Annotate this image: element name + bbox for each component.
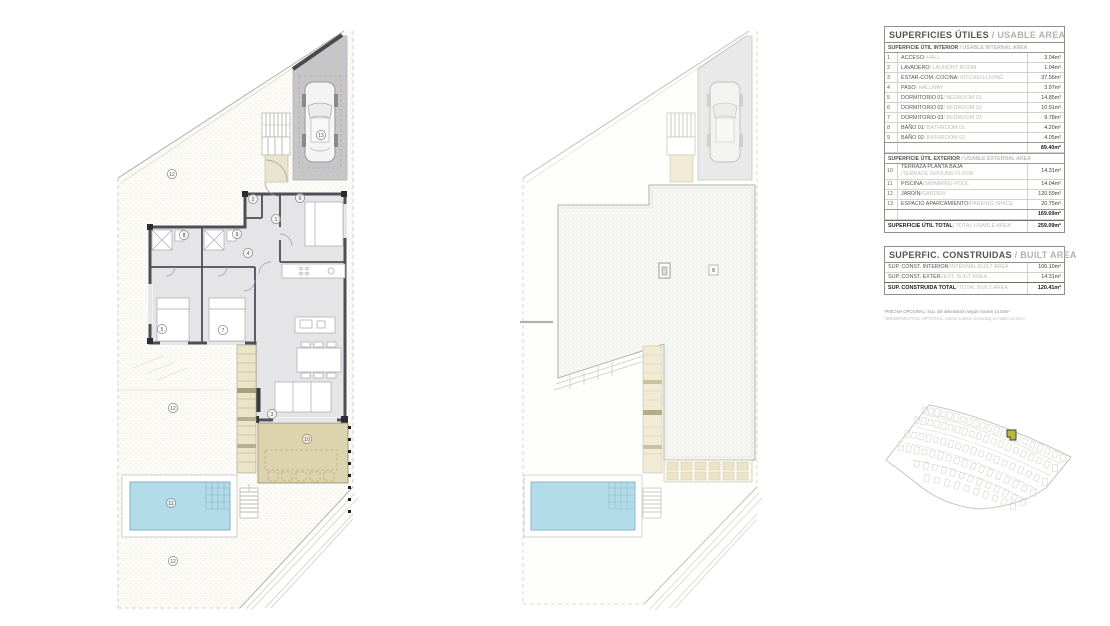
table-row: 9BAÑO 02 / BATHROOM 024.05m²	[885, 133, 1064, 142]
svg-text:10: 10	[304, 437, 310, 443]
table-row: 3ESTAR-COM.-COCINA / KITCHEN-LIVING37.56…	[885, 73, 1064, 83]
table-row: 5DORMITORIO 01 / BEDROOM 0114.85m²	[885, 93, 1064, 103]
urbanization-minimap	[875, 398, 1085, 543]
built-total-label-es: SUP. CONSTRUIDA TOTAL	[888, 285, 956, 291]
exterior-total-row: 169.69m²	[885, 209, 1064, 220]
table-row: 8BAÑO 01 / BATHROOM 014.20m²	[885, 123, 1064, 133]
svg-text:5: 5	[161, 327, 164, 333]
room-label-12: 12	[168, 403, 177, 412]
entry-porch	[265, 155, 288, 182]
room-label-12: 12	[167, 169, 176, 178]
usable-total-label-en: / TOTAL USABLE AREA	[953, 223, 1011, 229]
built-rows: SUP. CONST. INTERIOR /INTERNAL BUILT ARE…	[885, 263, 1064, 282]
built-total-label-en: / TOTAL BUILT AREA	[956, 285, 1008, 291]
entrance-stairs	[667, 113, 695, 155]
pool	[524, 475, 642, 537]
exterior-total-value: 169.69m²	[1027, 210, 1064, 219]
interior-rows: 1ACCESO / HALL3.04m²2LAVADERO / LAUNDRY …	[885, 53, 1064, 142]
table-row: SUP. CONST. INTERIOR /INTERNAL BUILT ARE…	[885, 263, 1064, 273]
usable-total-row: SUPERFICIE ÚTIL TOTAL / TOTAL USABLE ARE…	[885, 220, 1064, 232]
usable-area-title-en: / USABLE AREA	[989, 30, 1065, 40]
exterior-rows: 10TERRAZA PLANTA BAJA/TERRACE GROUND FLO…	[885, 164, 1064, 209]
usable-area-table: SUPERFICIES ÚTILES / USABLE AREA SUPERFI…	[884, 26, 1065, 233]
pergola-slats	[664, 460, 752, 482]
room-label-7: 7	[218, 325, 227, 334]
built-total-value: 120.41m²	[1027, 283, 1064, 294]
room-label-11: 11	[166, 498, 175, 507]
svg-text:6: 6	[299, 196, 302, 202]
ground-floor-site-plan: 131226189457310121112	[105, 22, 365, 610]
pool	[122, 475, 237, 537]
table-row: 12JARDÍN /GARDEN120.59m²	[885, 190, 1064, 200]
garage	[698, 36, 752, 180]
interior-total-value: 89.40m²	[1027, 143, 1064, 152]
room-label-12: 12	[168, 556, 177, 565]
room-label-4: 4	[243, 248, 252, 257]
svg-text:11: 11	[168, 501, 173, 507]
table-row: 2LAVADERO / LAUNDRY ROOM1.04m²	[885, 63, 1064, 73]
area-tables-panel: SUPERFICIES ÚTILES / USABLE AREA SUPERFI…	[884, 26, 1065, 322]
room-label-6: 6	[295, 193, 304, 202]
svg-text:7: 7	[222, 328, 225, 334]
garage	[293, 35, 347, 180]
car-icon	[707, 82, 743, 162]
table-row: 13ESPACIO APARCAMIENTO /PARKING SPACE20.…	[885, 200, 1064, 209]
usable-total-label-es: SUPERFICIE ÚTIL TOTAL	[888, 223, 953, 229]
svg-text:8: 8	[183, 233, 186, 239]
room-label-1: 1	[271, 214, 280, 223]
table-row: 4PASO / HALLWAY3.97m²	[885, 83, 1064, 93]
usable-area-title-es: SUPERFICIES ÚTILES	[889, 30, 989, 40]
svg-text:4: 4	[247, 251, 250, 257]
table-row: 7DORMITORIO 03 / BEDROOM 039.78m²	[885, 113, 1064, 123]
room-label-13: 13	[316, 130, 325, 139]
svg-text:1: 1	[275, 217, 278, 223]
svg-text:12: 12	[170, 559, 176, 565]
svg-text:2: 2	[252, 197, 255, 203]
svg-text:12: 12	[169, 172, 175, 178]
interior-total-row: 89.40m²	[885, 142, 1064, 153]
plan-sheet: 131226189457310121112	[0, 0, 1110, 626]
room-label-8: 8	[179, 230, 188, 239]
usable-total-value: 259.09m²	[1027, 221, 1064, 232]
built-area-title: SUPERFIC. CONSTRUIDAS / BUILT AREA	[885, 247, 1064, 263]
table-row: 1ACCESO / HALL3.04m²	[885, 53, 1064, 63]
room-label-9: 9	[232, 229, 241, 238]
garden-steps	[237, 345, 256, 473]
footnote-1: *PISCINA OPCIONAL: Sup. útil delimitació…	[884, 308, 1065, 315]
table-row: 10TERRAZA PLANTA BAJA/TERRACE GROUND FLO…	[885, 164, 1064, 180]
built-area-title-es: SUPERFIC. CONSTRUIDAS	[889, 250, 1012, 260]
table-row: 11PISCINA /SWIMMING POOL14.04m²	[885, 180, 1064, 190]
built-area-table: SUPERFIC. CONSTRUIDAS / BUILT AREA SUP. …	[884, 246, 1065, 295]
built-total-row: SUP. CONSTRUIDA TOTAL / TOTAL BUILT AREA…	[885, 282, 1064, 294]
table-row: SUP. CONST. EXTER. /EXT. BUILT AREA14.31…	[885, 273, 1064, 282]
svg-text:12: 12	[170, 406, 176, 412]
room-label-3: 3	[267, 409, 276, 418]
garden-stairs	[240, 484, 258, 518]
garden-steps	[643, 346, 662, 473]
built-area-title-en: / BUILT AREA	[1012, 250, 1077, 260]
car-icon	[302, 82, 338, 162]
table-row: 6DORMITORIO 02 / BEDROOM 0210.91m²	[885, 103, 1064, 113]
footnotes: *PISCINA OPCIONAL: Sup. útil delimitació…	[884, 308, 1065, 322]
roof-site-plan	[512, 22, 772, 610]
svg-text:13: 13	[318, 133, 324, 139]
exterior-section-header: SUPERFICIE ÚTIL EXTERIOR / USABLE EXTERN…	[885, 153, 1064, 164]
entrance-stairs	[262, 113, 290, 155]
svg-text:9: 9	[236, 232, 239, 238]
interior-header-en: / USABLE INTERNAL AREA	[958, 45, 1027, 51]
room-label-2: 2	[248, 194, 257, 203]
exterior-header-en: / USABLE EXTERNAL AREA	[960, 156, 1031, 162]
room-label-10: 10	[302, 434, 311, 443]
footnote-2: *SWIMMING POOL OPTIONAL: Useful surface …	[884, 315, 1065, 322]
interior-header-es: SUPERFICIE ÚTIL INTERIOR	[888, 45, 958, 51]
interior-section-header: SUPERFICIE ÚTIL INTERIOR / USABLE INTERN…	[885, 43, 1064, 53]
room-label-5: 5	[157, 324, 166, 333]
usable-area-title: SUPERFICIES ÚTILES / USABLE AREA	[885, 27, 1064, 43]
svg-text:3: 3	[271, 412, 274, 418]
garden-stairs	[643, 488, 661, 518]
exterior-header-es: SUPERFICIE ÚTIL EXTERIOR	[888, 156, 960, 162]
entry-porch	[670, 155, 693, 182]
